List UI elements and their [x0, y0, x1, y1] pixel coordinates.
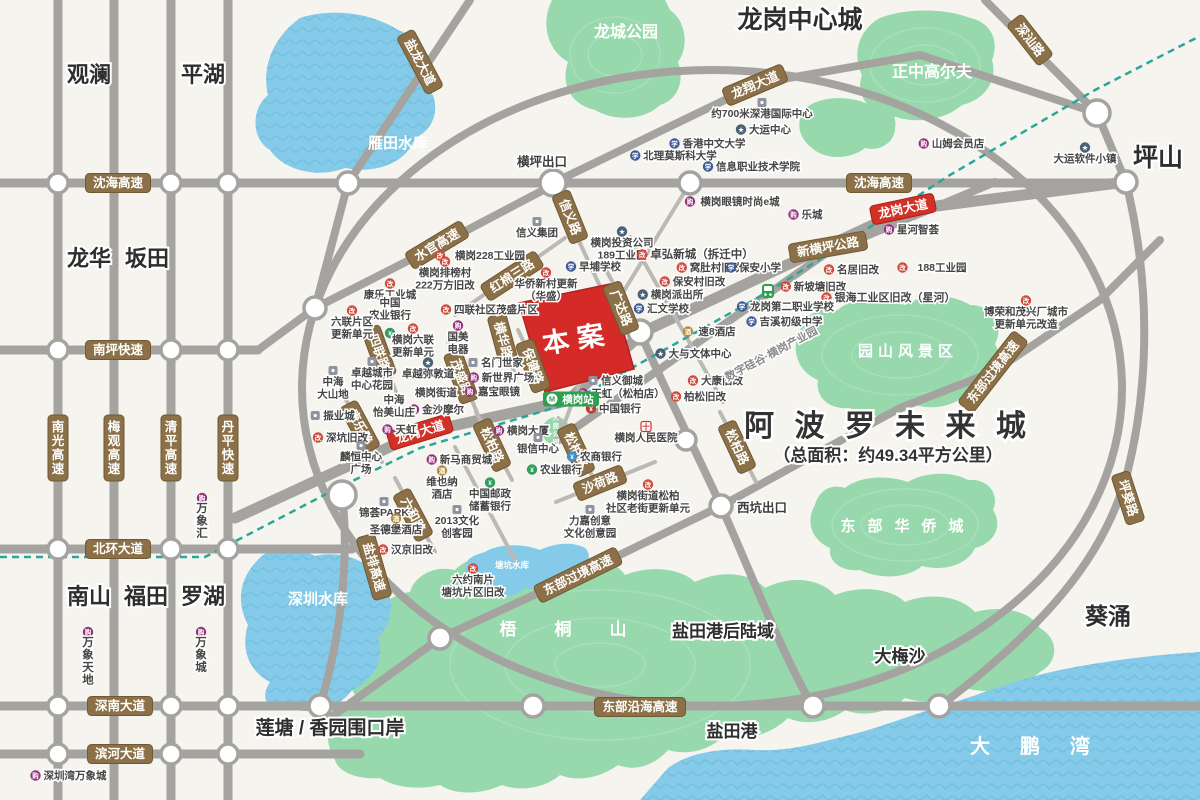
svg-text:北环大道: 北环大道 — [93, 541, 144, 556]
district-label: 龙华 — [67, 246, 111, 271]
svg-text:沈海高速: 沈海高速 — [93, 175, 144, 190]
svg-text:改: 改 — [442, 257, 449, 266]
poi-label: 速8酒店 — [698, 325, 736, 338]
svg-text:购: 购 — [455, 321, 462, 330]
poi-label: 万象汇 — [195, 502, 208, 540]
poi-label: 横岗眼镜时尚e城 — [700, 195, 780, 208]
svg-text:沈海高速: 沈海高速 — [854, 175, 905, 190]
water-label: 深圳水库 — [288, 590, 348, 608]
apollo-title: 阿 波 罗 未 来 城 — [744, 410, 1032, 443]
svg-text:丹平快速: 丹平快速 — [222, 420, 235, 476]
poi-label: 中国邮政储蓄银行 — [469, 487, 511, 513]
poi-label: 卓越弥敦道 — [402, 367, 455, 380]
road-label: 南坪快速 — [86, 341, 151, 360]
school-icon: 学 — [737, 301, 747, 311]
poi-label: 国美电器 — [448, 330, 469, 356]
svg-text:购: 购 — [790, 210, 797, 219]
svg-text:酒: 酒 — [439, 466, 446, 475]
mall-icon: 购 — [685, 196, 695, 206]
poi-label: 龙岗第二职业学校 — [749, 300, 834, 313]
poi-label: 横岗大厦 — [507, 424, 549, 437]
svg-text:购: 购 — [471, 373, 478, 382]
school-icon: 学 — [669, 138, 679, 148]
svg-text:学: 学 — [671, 139, 678, 148]
poi-label: 卓越城市中心花园 — [351, 366, 393, 392]
svg-text:改: 改 — [443, 305, 450, 314]
poi: 购万象汇 — [195, 493, 208, 540]
poi-label: 信息职业技术学院 — [716, 160, 800, 173]
spot-icon: ★ — [655, 348, 665, 358]
road-label: 北环大道 — [86, 540, 151, 559]
building-icon — [311, 411, 320, 420]
location-map: 本案 龙城公园正中高尔夫园山风景区东部华侨城梧桐山人民公园 雁田水库深圳水库塘坑… — [0, 0, 1200, 800]
poi-label: 汇文学校 — [647, 302, 689, 315]
redev-icon: 改 — [440, 256, 450, 266]
redev-icon: 改 — [347, 305, 357, 315]
poi: 天虹购 — [382, 423, 417, 436]
district-label: 莲塘 / 香园围口岸 — [256, 716, 405, 739]
poi-label: 四联社区茂盛片区 — [454, 303, 538, 316]
redev-icon: 改 — [408, 323, 418, 333]
mall-icon: 购 — [884, 224, 894, 234]
svg-text:滨河大道: 滨河大道 — [95, 746, 146, 761]
poi-label: 早埔学校 — [579, 260, 621, 273]
svg-text:购: 购 — [496, 426, 503, 435]
poi-label: 天虹 — [396, 423, 417, 436]
poi: 购万象城 — [194, 627, 207, 674]
bank-green-icon: ¥ — [527, 464, 537, 474]
svg-text:购: 购 — [199, 493, 206, 502]
mall-icon: 购 — [83, 627, 93, 637]
svg-text:购: 购 — [85, 627, 92, 636]
poi-label: 深圳湾万象城 — [44, 769, 107, 782]
poi-label: 金沙摩尔 — [421, 403, 464, 416]
svg-text:学: 学 — [636, 304, 643, 313]
poi: 信息职业技术学院学 — [703, 160, 801, 173]
poi-label: 约700米深港国际中心 — [711, 107, 813, 120]
svg-text:购: 购 — [687, 197, 694, 206]
poi-label: 农商银行 — [579, 450, 622, 463]
poi-label: 天虹（松柏店） — [591, 387, 665, 400]
poi-label: 横岗街道松柏社区老街更新单元 — [605, 489, 690, 515]
svg-text:改: 改 — [543, 268, 550, 277]
svg-text:深南大道: 深南大道 — [95, 698, 146, 713]
mall-icon: 购 — [469, 372, 479, 382]
mall-icon: 购 — [30, 770, 40, 780]
svg-text:改: 改 — [315, 433, 322, 442]
poi-label: 北理莫斯科大学 — [643, 149, 717, 162]
poi-label: 横岗228工业园 — [455, 249, 525, 262]
poi-label: 博荣和茂兴厂城市更新单元改造 — [984, 305, 1068, 331]
mall-icon: 购 — [196, 627, 206, 637]
building-icon — [357, 441, 366, 450]
road-label: 丹平快速 — [218, 415, 238, 481]
poi-label: 柏松旧改 — [684, 390, 726, 403]
road-label: 梅观高速 — [104, 415, 124, 481]
svg-text:改: 改 — [673, 392, 680, 401]
svg-text:梅观高速: 梅观高速 — [108, 419, 121, 476]
poi-label: 大运软件小镇 — [1054, 152, 1117, 165]
mall-icon: 购 — [453, 320, 463, 330]
poi-label: 六联片区更新单元 — [331, 315, 373, 341]
building-icon — [329, 366, 338, 375]
building-icon — [758, 98, 767, 107]
poi-label: 横岗派出所 — [651, 288, 704, 301]
poi-label: 大与文体中心 — [669, 347, 732, 360]
poi-label: 横岗六联更新单元 — [392, 333, 434, 359]
mall-icon: 购 — [919, 138, 929, 148]
poi: 横岗街道 — [415, 386, 457, 399]
bank-blue-icon: ¥ — [567, 451, 577, 461]
school-icon: 学 — [566, 261, 576, 271]
poi-label: 中国银行 — [599, 402, 641, 415]
road-label: 滨河大道 — [88, 745, 153, 764]
school-icon: 学 — [634, 303, 644, 313]
svg-text:改: 改 — [387, 279, 394, 288]
svg-text:清平高速: 清平高速 — [165, 419, 178, 476]
train-icon — [762, 284, 774, 298]
svg-text:¥: ¥ — [530, 467, 534, 474]
redev-icon: 改 — [688, 375, 698, 385]
redev-icon: 改 — [677, 262, 687, 272]
poi-label: 银信中心 — [517, 442, 559, 455]
poi-label: 香港中文大学 — [682, 137, 746, 150]
poi-label: 万象城 — [194, 636, 207, 674]
building-icon — [589, 376, 598, 385]
park-label: 园山风景区 — [858, 342, 958, 360]
svg-text:改: 改 — [899, 263, 906, 272]
svg-text:东部沿海高速: 东部沿海高速 — [602, 699, 678, 714]
svg-text:改: 改 — [639, 250, 646, 259]
redev-icon: 改 — [313, 432, 323, 442]
road-label: 深南大道 — [88, 697, 153, 716]
svg-text:南坪快速: 南坪快速 — [93, 342, 144, 357]
poi-label: 大运中心 — [749, 123, 791, 136]
redev-icon: 改 — [385, 278, 395, 288]
svg-text:改: 改 — [679, 263, 686, 272]
svg-text:改: 改 — [826, 265, 833, 274]
svg-text:学: 学 — [705, 162, 712, 171]
poi-label: 圣德堡酒店 — [369, 523, 423, 536]
poi: 四联社区茂盛片区改 — [441, 303, 539, 316]
district-label: 观澜 — [67, 62, 111, 87]
poi-label: 信义集团 — [516, 226, 558, 239]
poi-label: 山姆会员店 — [932, 137, 985, 150]
poi-label: 名居旧改 — [837, 263, 879, 276]
school-icon: 学 — [630, 150, 640, 160]
redev-icon: 改 — [378, 544, 388, 554]
building-icon — [533, 217, 542, 226]
metro-station: M 横岗站 — [543, 392, 599, 407]
park-label: 正中高尔夫 — [892, 62, 973, 81]
redev-icon: 改 — [824, 264, 834, 274]
poi-label: 卓弘新城（拆迁中） — [650, 247, 754, 261]
redev-icon: 改 — [897, 262, 907, 272]
svg-text:改: 改 — [662, 277, 669, 286]
svg-text:改: 改 — [349, 306, 356, 315]
building-icon — [368, 357, 377, 366]
district-label: 坪山 — [1133, 144, 1183, 172]
spot-icon: ★ — [638, 289, 648, 299]
school-icon: 学 — [746, 316, 756, 326]
poi-label: 万象天地 — [81, 636, 94, 687]
svg-text:学: 学 — [739, 302, 746, 311]
poi-label: 农业银行 — [539, 463, 582, 476]
redev-icon: 改 — [1021, 295, 1031, 305]
svg-text:十: 十 — [642, 422, 650, 432]
svg-text:购: 购 — [32, 771, 39, 780]
metro-station-label: 横岗站 — [562, 393, 594, 406]
svg-text:改: 改 — [690, 376, 697, 385]
building-icon — [586, 505, 595, 514]
poi-label: 乐城 — [802, 208, 823, 221]
svg-text:学: 学 — [632, 151, 639, 160]
poi: 北理莫斯科大学学 — [630, 149, 717, 162]
park-label: 东部华侨城 — [840, 517, 975, 535]
poi-label: 信义御城 — [601, 374, 643, 387]
svg-text:购: 购 — [198, 627, 205, 636]
poi: 银海工业区旧改（星河）改 — [821, 290, 955, 304]
district-label: 福田 — [123, 584, 168, 609]
redev-icon: 改 — [637, 249, 647, 259]
poi-label: 嘉宝眼镜 — [477, 385, 520, 398]
exit-label: 西坑出口 — [737, 500, 787, 515]
redev-icon: 改 — [441, 304, 451, 314]
poi-label: 力嘉创意文化创意园 — [563, 514, 617, 540]
svg-text:¥: ¥ — [589, 406, 593, 413]
district-label: 平湖 — [181, 62, 225, 87]
poi-label: 汉京旧改 — [391, 543, 433, 556]
apollo-subtitle: （总面积：约49.34平方公里） — [773, 445, 1003, 465]
district-label: 大梅沙 — [875, 646, 926, 666]
district-label: 罗湖 — [181, 584, 225, 609]
district-label: 葵涌 — [1085, 603, 1131, 629]
poi-label: 横岗排榜村222万方旧改 — [415, 266, 475, 292]
building-icon — [469, 358, 478, 367]
spot-icon: ★ — [1080, 142, 1090, 152]
road-label: 东部沿海高速 — [595, 698, 686, 717]
hospital-icon: 十 — [641, 422, 651, 432]
building-icon — [534, 433, 543, 442]
poi-label: 横岗人民医院 — [615, 431, 678, 444]
poi-label: 锦荟PARK — [359, 506, 409, 519]
svg-text:¥: ¥ — [488, 480, 492, 487]
park-label: 梧桐山 — [500, 619, 665, 639]
spot-icon: ★ — [736, 124, 746, 134]
poi: 龙岗第二职业学校学 — [737, 300, 835, 313]
svg-text:南光高速: 南光高速 — [51, 419, 65, 476]
road-label: 沈海高速 — [86, 174, 151, 193]
spot-icon: ★ — [423, 357, 433, 367]
redev-icon: 改 — [671, 391, 681, 401]
hotel-icon: 酒 — [437, 465, 447, 475]
school-icon: 学 — [703, 161, 713, 171]
svg-text:改: 改 — [783, 282, 790, 291]
district-label: 盐田港后陆域 — [672, 621, 774, 641]
poi-label: 振业城 — [323, 409, 355, 422]
redev-icon: 改 — [643, 479, 653, 489]
district-label: 南山 — [67, 584, 111, 609]
svg-text:¥: ¥ — [570, 454, 574, 461]
mall-icon: 购 — [465, 386, 475, 396]
district-label: 盐田港 — [707, 721, 759, 741]
mall-icon: 购 — [382, 424, 392, 434]
road-label: 南光高速 — [48, 415, 68, 481]
map-canvas: 本案 龙城公园正中高尔夫园山风景区东部华侨城梧桐山人民公园 雁田水库深圳水库塘坑… — [0, 0, 1200, 800]
poi-label: 星河智荟 — [897, 223, 939, 236]
mall-icon: 购 — [788, 209, 798, 219]
svg-text:酒: 酒 — [685, 327, 692, 336]
apollo-headline: 阿 波 罗 未 来 城 （总面积：约49.34平方公里） — [744, 410, 1032, 465]
redev-icon: 改 — [541, 267, 551, 277]
svg-text:改: 改 — [470, 564, 477, 573]
svg-text:改: 改 — [645, 480, 652, 489]
poi-label: 名门世家 — [481, 356, 523, 369]
svg-text:酒: 酒 — [393, 514, 400, 523]
spot-icon: ★ — [617, 226, 627, 236]
svg-text:购: 购 — [384, 425, 391, 434]
road-label: 清平高速 — [161, 415, 181, 481]
water-label: 大鹏湾 — [970, 734, 1120, 758]
svg-text:购: 购 — [921, 139, 928, 148]
poi: 乐城购 — [788, 208, 823, 221]
building-icon — [380, 497, 389, 506]
poi-label: 银海工业区旧改（星河） — [835, 290, 956, 304]
metro-logo-letter: M — [549, 395, 555, 404]
poi-label: 横岗街道 — [415, 386, 457, 399]
poi-label: 新世界广场 — [482, 371, 535, 384]
poi-label: 188工业园 — [917, 261, 966, 274]
mall-icon: 购 — [494, 425, 504, 435]
water-label: 塘坑水库 — [495, 560, 530, 570]
svg-text:购: 购 — [429, 455, 436, 464]
redev-icon: 改 — [468, 563, 478, 573]
poi: 卓弘新城（拆迁中）改 — [637, 247, 754, 261]
district-label: 坂田 — [125, 246, 169, 271]
mall-icon: 购 — [427, 454, 437, 464]
svg-text:购: 购 — [886, 225, 893, 234]
exit-label: 横坪出口 — [517, 154, 567, 169]
district-label: 龙岗中心城 — [737, 6, 862, 34]
hotel-icon: 酒 — [683, 326, 693, 336]
park-label: 龙城公园 — [593, 22, 658, 41]
redev-icon: 改 — [781, 281, 791, 291]
water-label: 雁田水库 — [368, 134, 428, 152]
poi-label: 保安小学 — [738, 261, 781, 274]
svg-text:改: 改 — [410, 324, 417, 333]
svg-text:改: 改 — [1023, 296, 1030, 305]
bank-green-icon: ¥ — [485, 477, 495, 487]
school-icon: 学 — [726, 262, 736, 272]
redev-icon: 改 — [660, 276, 670, 286]
building-icon — [453, 505, 462, 514]
svg-text:购: 购 — [467, 387, 474, 396]
poi-label: 新马商贸城 — [440, 453, 493, 466]
road-label: 沈海高速 — [847, 174, 912, 193]
hotel-icon: 酒 — [391, 513, 401, 523]
svg-text:学: 学 — [568, 262, 575, 271]
svg-text:学: 学 — [748, 317, 755, 326]
poi-label: 保安村旧改 — [672, 275, 726, 288]
svg-text:改: 改 — [380, 545, 387, 554]
mall-icon: 购 — [197, 493, 207, 503]
svg-text:学: 学 — [728, 263, 735, 272]
